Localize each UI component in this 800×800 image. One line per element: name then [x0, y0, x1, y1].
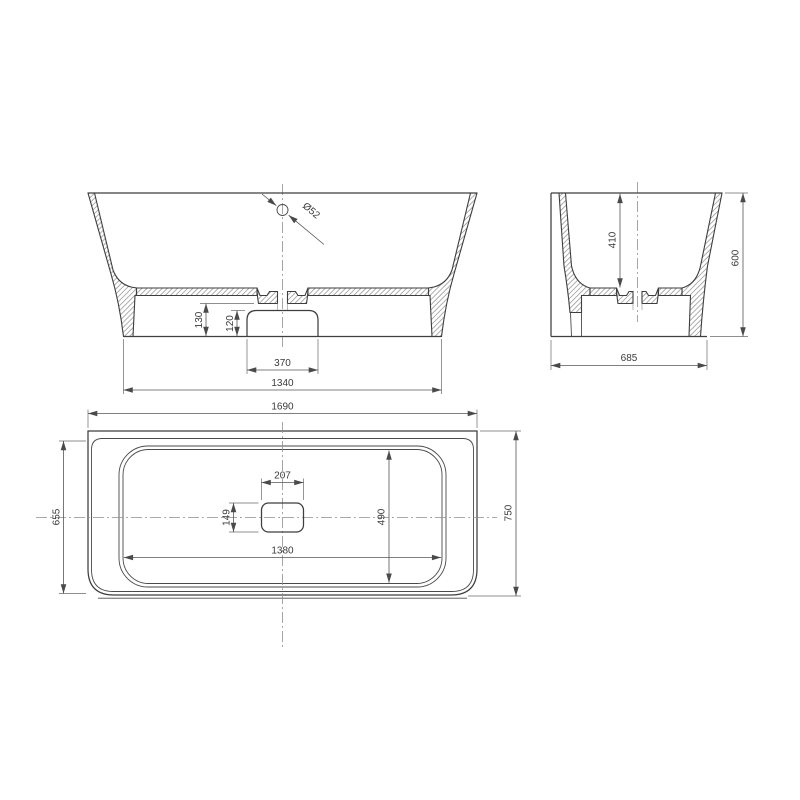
dim-130-label: 130 — [194, 311, 205, 328]
dim-149-label: 149 — [222, 509, 233, 526]
dim-drain-diameter-label: Ø52 — [300, 201, 322, 222]
drain-leader-upper — [262, 194, 276, 206]
dim-370-label: 370 — [274, 358, 291, 369]
technical-drawing-sheet: Ø52 130 120 370 1340 — [0, 0, 800, 800]
dim-410-label: 410 — [608, 231, 619, 248]
dim-120-label: 120 — [225, 315, 236, 332]
dim-1380-label: 1380 — [271, 546, 294, 557]
side-foot-notch-left-edge — [571, 313, 572, 337]
drain-leader-lower — [289, 215, 324, 244]
side-sump-left — [617, 288, 634, 304]
dim-207-label: 207 — [274, 471, 291, 482]
dim-490-label: 490 — [377, 508, 388, 525]
dim-655-label: 655 — [52, 508, 63, 525]
side-right-wall-section — [682, 193, 722, 337]
dim-1690-label: 1690 — [271, 402, 294, 413]
side-floor-left — [590, 288, 617, 296]
front-sump-left — [257, 288, 278, 304]
front-view: Ø52 130 120 370 1340 — [88, 184, 477, 394]
side-sump-right — [642, 288, 659, 304]
side-view: 410 600 685 — [551, 182, 748, 370]
front-left-wall-section — [88, 193, 137, 337]
side-left-wall-section — [559, 193, 590, 313]
bathtub-drawing: Ø52 130 120 370 1340 — [0, 0, 800, 800]
front-floor-right — [308, 288, 429, 296]
plan-view: 207 149 490 1380 1690 655 750 — [36, 402, 521, 649]
front-sump-right — [288, 288, 309, 304]
front-right-wall-section — [429, 193, 478, 337]
front-floor-left — [137, 288, 258, 296]
dim-1340-label: 1340 — [271, 378, 294, 389]
side-floor-right — [659, 288, 683, 296]
dim-685-label: 685 — [621, 353, 638, 364]
dim-750-label: 750 — [504, 504, 515, 521]
dim-600-label: 600 — [731, 249, 742, 266]
